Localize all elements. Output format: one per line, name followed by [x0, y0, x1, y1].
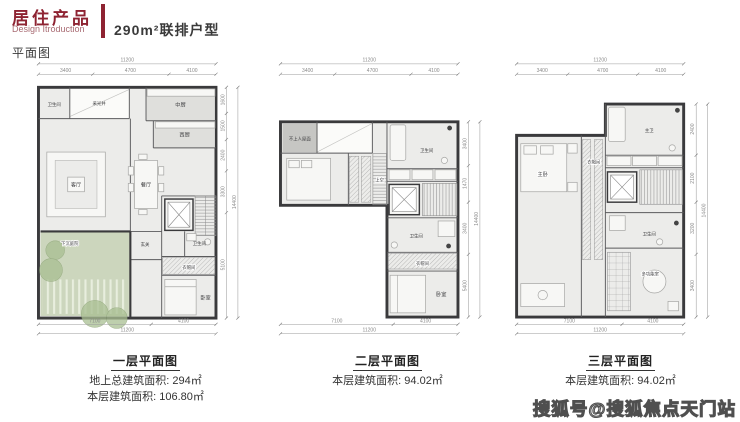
floor3-panel: 11200 3400 4700 4100 主卫 衣帽间 主卧 卫生间 多功能室	[503, 56, 738, 345]
dim-text: 2400	[220, 149, 226, 160]
dim-text: 4700	[367, 68, 378, 74]
vanity	[521, 284, 565, 307]
stairs	[195, 196, 216, 236]
dim-text: 7100	[89, 318, 100, 324]
elevator	[389, 184, 419, 214]
dim-text: 3400	[462, 222, 468, 233]
bed	[165, 279, 196, 315]
floor3-top-dims: 11200 3400 4700 4100	[515, 58, 685, 76]
closet-row	[607, 156, 682, 165]
room-label-void: 上空	[375, 176, 384, 182]
floor2-right-dims: 3400 1470 3400 5400 14400	[462, 120, 481, 318]
dim-text: 4700	[125, 68, 136, 74]
dim-text: 11200	[362, 328, 376, 334]
room-label-cloak: 衣帽间	[587, 159, 600, 166]
dim-text: 4700	[597, 68, 608, 74]
floor2-plan: 11200 3400 4700 4100 不上人屋面 卫生间 上空 卫生间 衣帽…	[270, 56, 505, 340]
dim-text: 11200	[593, 58, 607, 64]
floor3-area-floor: 本层建筑面积: 94.02㎡	[503, 374, 738, 390]
floor1-caption: 一层平面图 地上总建筑面积: 294㎡ 本层建筑面积: 106.80㎡	[28, 352, 263, 406]
page-subtitle-en: Design Itroduction	[12, 24, 85, 34]
dim-text: 2100	[690, 172, 696, 183]
dim-text: 4100	[178, 318, 189, 324]
floor3-right-dims: 2400 2100 3200 3400 14400	[690, 102, 709, 318]
room-label-bath-top: 卫生间	[420, 147, 433, 154]
floor1-right-dims: 1600 1500 2400 3300 5100 14400	[220, 86, 239, 320]
floor3-bottom-dims: 7100 4100 11200	[515, 318, 685, 335]
dim-text: 5100	[220, 259, 226, 270]
dim-text: 4100	[647, 318, 658, 324]
floor3-plan: 11200 3400 4700 4100 主卫 衣帽间 主卧 卫生间 多功能室	[503, 56, 738, 340]
room-label-bath-mid: 卫生间	[410, 233, 423, 240]
floor2-caption: 二层平面图 本层建筑面积: 94.02㎡	[270, 352, 505, 390]
wardrobe	[582, 140, 590, 260]
floor2-title: 二层平面图	[353, 352, 422, 371]
dim-text: 11200	[120, 58, 134, 64]
stairs	[422, 183, 456, 215]
dim-text: 3400	[60, 68, 71, 74]
room-label-living: 客厅	[71, 181, 81, 189]
chair	[668, 301, 678, 310]
dim-text: 1470	[462, 178, 468, 189]
dim-text: 4100	[428, 68, 439, 74]
room-label-kitchen-west: 西厨	[179, 131, 189, 138]
shower	[610, 216, 626, 231]
dim-text: 4100	[186, 68, 197, 74]
room-label-bath: 卫生间	[193, 240, 206, 247]
sink	[441, 157, 447, 163]
floor3-caption: 三层平面图 本层建筑面积: 94.02㎡	[503, 352, 738, 390]
dim-text: 1600	[220, 94, 226, 105]
floor1-panel: 11200 3400 4700 4100	[28, 56, 263, 345]
floor1-area-total: 地上总建筑面积: 294㎡	[28, 374, 263, 390]
floor1-bottom-dims: 7100 4100 11200	[37, 318, 218, 335]
dim-text: 4100	[420, 318, 431, 324]
dim-text: 3400	[462, 138, 468, 149]
toilet	[447, 126, 452, 131]
dim-text: 14400	[702, 203, 708, 217]
floor1-top-dims: 11200 3400 4700 4100	[37, 58, 218, 76]
dim-text: 7100	[564, 318, 575, 324]
room-label-dining: 餐厅	[141, 181, 151, 189]
floor1-title: 一层平面图	[111, 352, 180, 371]
elevator	[607, 172, 636, 202]
toilet	[674, 221, 679, 226]
shelving	[607, 252, 630, 310]
dim-text: 14400	[232, 195, 238, 209]
sink	[669, 145, 675, 151]
sink	[187, 234, 196, 241]
room-label-bedroom: 卧室	[436, 290, 446, 298]
dim-text: 3300	[220, 186, 226, 197]
room-label-lightwell: 采光井	[92, 100, 106, 107]
bathtub	[608, 107, 625, 141]
west-kitchen-counter	[155, 122, 215, 128]
room-label-bath: 卫生间	[643, 231, 656, 238]
accent-bar	[101, 4, 105, 38]
room-label-multi: 多功能室	[642, 270, 660, 277]
room-label-roof: 不上人屋面	[289, 136, 311, 143]
dim-text: 11200	[593, 328, 607, 334]
wardrobe	[361, 156, 370, 202]
dim-text: 11200	[362, 58, 376, 64]
floor2-panel: 11200 3400 4700 4100 不上人屋面 卫生间 上空 卫生间 衣帽…	[270, 56, 505, 345]
sink	[657, 239, 663, 245]
room-label-cloak: 衣帽间	[182, 264, 195, 271]
room-label-foyer: 玄关	[141, 241, 150, 248]
floor2-area-floor: 本层建筑面积: 94.02㎡	[270, 374, 505, 390]
room-label-bedroom: 卧室	[200, 293, 210, 301]
dim-text: 4100	[655, 68, 666, 74]
room-label-master-bath: 主卫	[645, 127, 654, 133]
floor3-title: 三层平面图	[586, 352, 655, 371]
watermark: 搜狐号@搜狐焦点天门站	[533, 396, 736, 421]
dim-text: 3400	[302, 68, 313, 74]
floor2-bottom-dims: 7100 4100 11200	[279, 318, 460, 335]
room-label-bath-top: 卫生间	[48, 101, 61, 108]
stairs	[640, 170, 683, 204]
slide: { "header": { "title_cn": "居住产品", "title…	[0, 0, 740, 422]
room-label-master-bed: 主卧	[537, 170, 547, 178]
dim-text: 3400	[537, 68, 548, 74]
dim-text: 7100	[331, 318, 342, 324]
toilet	[446, 244, 451, 249]
dim-text: 2400	[690, 123, 696, 134]
dim-text: 3200	[690, 222, 696, 233]
dim-text: 1500	[220, 120, 226, 131]
toilet	[675, 108, 680, 113]
floor1-plan: 11200 3400 4700 4100	[28, 56, 263, 340]
room-label-kitchen-cn: 中厨	[175, 101, 185, 109]
bed	[390, 275, 426, 313]
dim-text: 3400	[690, 280, 696, 291]
elevator	[165, 199, 193, 230]
product-type-title: 290m²联排户型	[114, 20, 219, 40]
shower	[438, 221, 455, 237]
kitchen-counter	[147, 89, 215, 96]
floor1-area-floor: 本层建筑面积: 106.80㎡	[28, 390, 263, 406]
wardrobe	[594, 140, 602, 260]
closet-row	[389, 170, 456, 180]
room-label-cloak: 衣帽间	[416, 260, 429, 267]
wardrobe	[349, 156, 358, 202]
dim-text: 5400	[462, 280, 468, 291]
sink	[391, 242, 397, 248]
dim-text: 14400	[474, 212, 480, 226]
dim-text: 11200	[120, 328, 134, 334]
floor2-top-dims: 11200 3400 4700 4100	[279, 58, 460, 76]
bed	[287, 158, 331, 200]
room-label-courtyard: 下沉庭院	[61, 240, 79, 247]
bathtub	[390, 125, 406, 161]
